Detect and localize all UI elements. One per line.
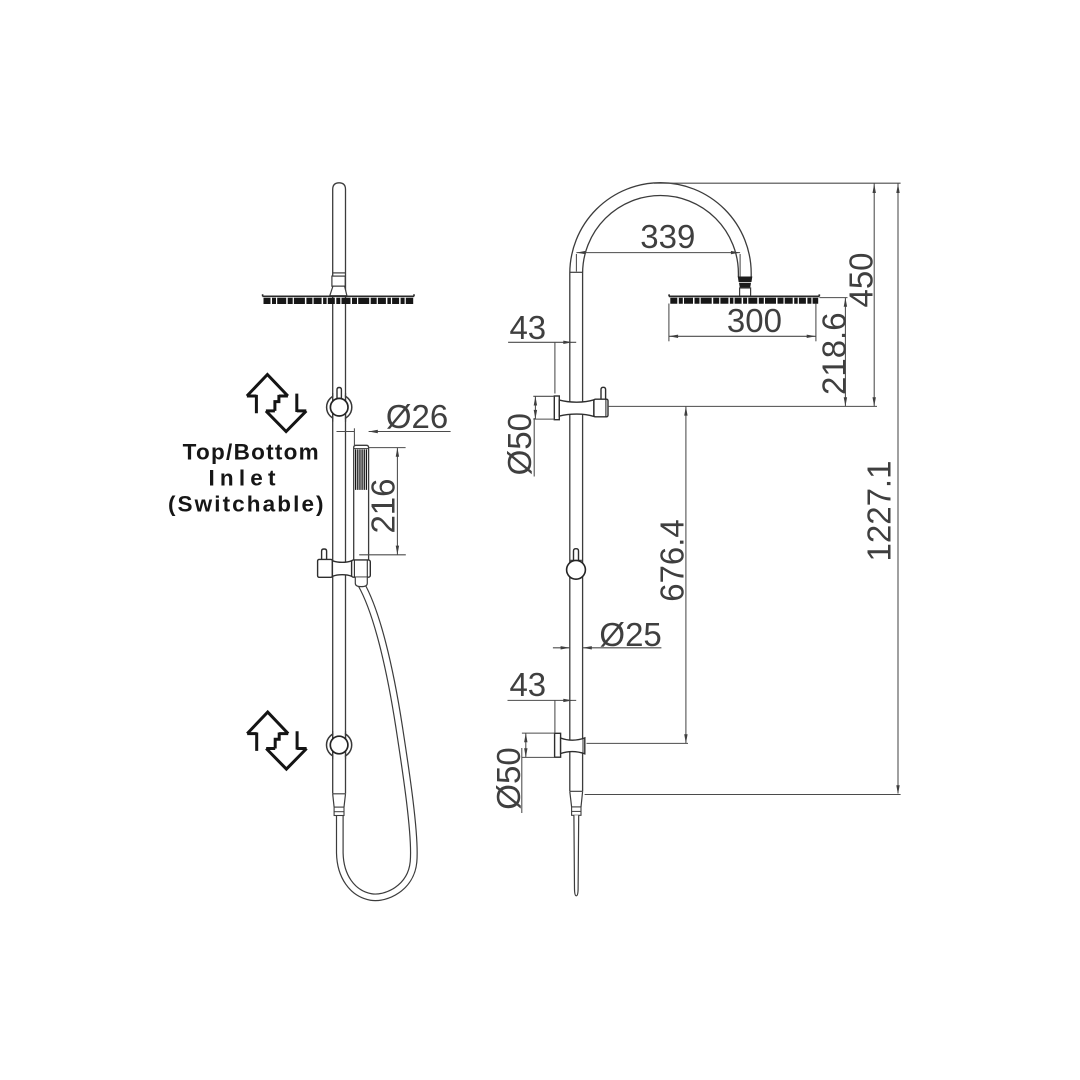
svg-text:450: 450 (843, 252, 880, 307)
svg-text:300: 300 (727, 302, 782, 339)
svg-text:(Switchable): (Switchable) (168, 491, 326, 516)
svg-text:216: 216 (364, 478, 401, 533)
svg-text:Ø25: Ø25 (599, 616, 661, 653)
svg-text:Ø50: Ø50 (490, 747, 527, 809)
svg-text:676.4: 676.4 (654, 519, 691, 602)
svg-text:Inlet: Inlet (208, 465, 280, 490)
svg-text:1227.1: 1227.1 (860, 461, 897, 562)
svg-text:Ø50: Ø50 (501, 413, 538, 475)
svg-text:Top/Bottom: Top/Bottom (183, 439, 320, 464)
svg-text:Ø26: Ø26 (386, 398, 448, 435)
svg-text:339: 339 (640, 218, 695, 255)
svg-text:43: 43 (509, 666, 546, 703)
svg-text:218.6: 218.6 (815, 312, 852, 395)
svg-text:43: 43 (509, 309, 546, 346)
